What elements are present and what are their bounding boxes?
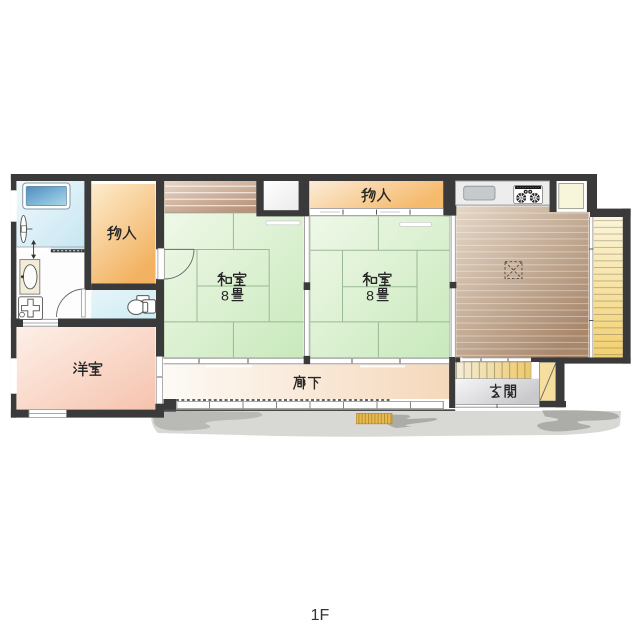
- svg-text:8: 8: [366, 288, 374, 304]
- svg-text:1F: 1F: [311, 607, 330, 624]
- svg-text:8: 8: [221, 288, 229, 304]
